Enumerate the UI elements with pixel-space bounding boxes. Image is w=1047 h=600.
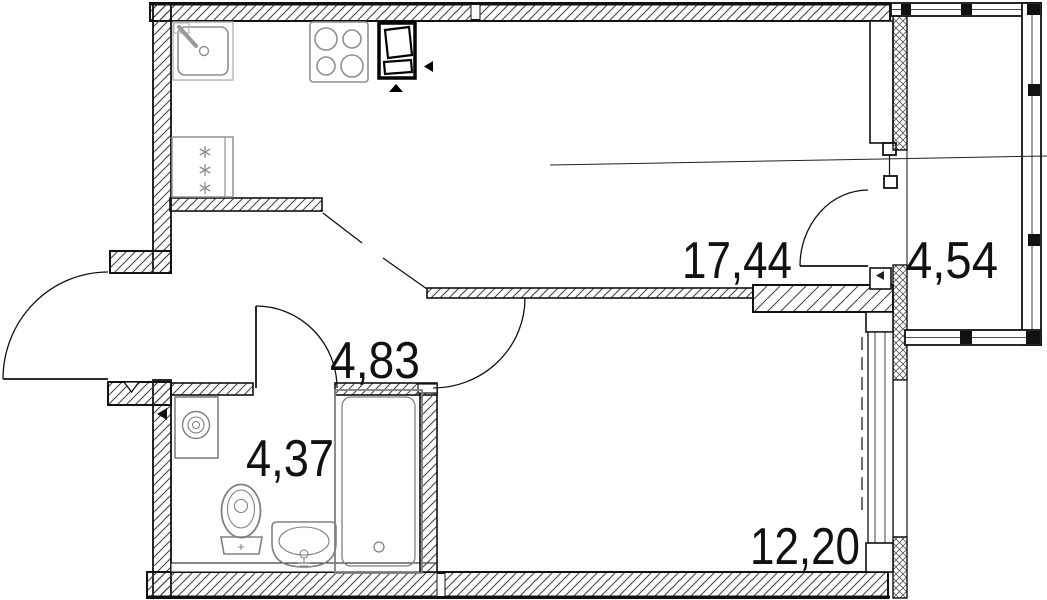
insulation-strip-c <box>893 537 907 598</box>
floor-plan: 17,44 4,54 4,83 4,37 12,20 <box>0 0 1047 600</box>
glazing-right <box>1022 3 1041 345</box>
wall-living-balcony <box>870 21 893 143</box>
entrance-jamb-upper <box>110 251 171 273</box>
ventilation-shaft-icon <box>379 23 433 92</box>
balcony-area-label: 4,54 <box>906 232 998 290</box>
kitchen-living-area-label: 17,44 <box>682 232 792 290</box>
washbasin-icon <box>272 522 336 567</box>
wall-bottom-joint <box>437 574 445 597</box>
bedroom-door <box>433 298 525 388</box>
snowflake-marks <box>200 146 210 194</box>
hallway-area-label: 4,83 <box>330 332 420 390</box>
kitchen-fixtures <box>172 22 433 197</box>
bedroom-window-inner <box>868 332 893 545</box>
wall-left-upper <box>153 3 171 273</box>
vent-arrow-down <box>389 84 403 92</box>
floor-plan-drawing: 17,44 4,54 4,83 4,37 12,20 <box>0 0 1047 600</box>
section-line <box>550 156 1047 165</box>
entrance-jamb-lower <box>108 382 171 405</box>
insulation-strip-b <box>893 265 907 380</box>
walls <box>108 3 893 598</box>
wall-bathroom-top-left <box>171 383 253 395</box>
wall-kitchen-hallway <box>170 198 322 211</box>
kitchen-sink-icon <box>173 22 233 80</box>
kitchen-hallway-opening <box>323 213 427 289</box>
entrance-door-swing-arc <box>3 272 108 379</box>
bathroom-area-label: 4,37 <box>246 430 334 488</box>
bedroom-window-jamb-bottom <box>866 543 893 572</box>
bedroom-window-jamb-top <box>866 312 893 332</box>
vent-arrow-left <box>424 61 433 72</box>
bedroom-door-swing-arc <box>433 298 525 388</box>
washing-machine-icon <box>175 397 218 458</box>
bathroom-door-swing-arc <box>256 306 337 388</box>
glazing-mullion-blocks <box>901 4 1040 344</box>
entrance-door <box>3 272 108 379</box>
balcony-door <box>800 190 868 266</box>
refrigerator-icon <box>172 137 233 197</box>
balcony-door-block-bottom <box>884 176 897 188</box>
balcony-door-swing-arc <box>800 190 868 266</box>
balcony-glazing <box>891 3 1041 345</box>
insulation-strip-a <box>893 15 907 150</box>
bedroom-area-label: 12,20 <box>750 518 860 576</box>
bathtub-icon <box>335 390 422 573</box>
stove-icon <box>310 22 368 82</box>
toilet-icon <box>221 485 262 555</box>
bathroom-door <box>256 306 337 388</box>
wall-jamb-square <box>870 268 891 289</box>
bedroom-window-outer <box>893 380 907 537</box>
wall-top-joint <box>471 5 480 20</box>
wall-top <box>150 3 890 21</box>
